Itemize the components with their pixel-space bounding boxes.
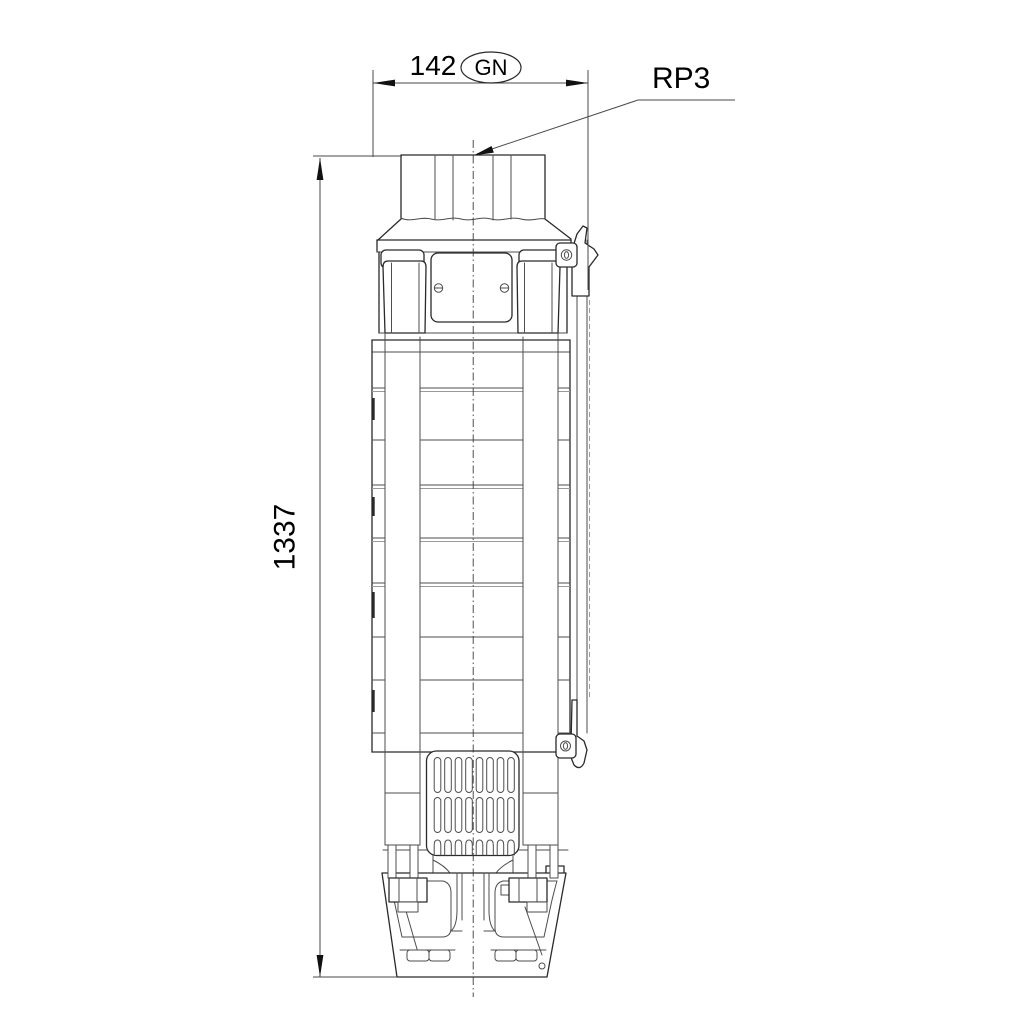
cable-guard-strap-left	[385, 333, 420, 845]
chamber-stack	[372, 340, 571, 752]
drawing-canvas: 142 GN 1337 RP3	[0, 0, 1024, 1024]
connection-callout: RP3	[474, 62, 736, 156]
stud-bolt-left	[388, 845, 427, 912]
dimension-arrow-up-icon	[317, 158, 324, 180]
strap-clamp-left	[381, 250, 426, 333]
discharge-head	[378, 155, 571, 240]
leader-arrow-icon	[474, 146, 494, 156]
dimension-arrow-right-icon	[566, 80, 588, 87]
dimension-arrow-left-icon	[373, 80, 395, 87]
pump-technical-drawing: 142 GN 1337 RP3	[0, 0, 1024, 1024]
motor-base	[382, 845, 568, 977]
cable-guard-strap-right	[523, 333, 558, 845]
cable-clamp-plate	[431, 253, 512, 322]
connection-type-label: RP3	[652, 62, 710, 95]
strap-clamp-right	[517, 250, 562, 333]
stage-lines	[372, 388, 570, 733]
height-dimension: 1337	[269, 156, 403, 977]
pump-outline	[372, 140, 599, 997]
width-dimension-value: 142	[410, 50, 457, 81]
dimension-arrow-down-icon	[317, 955, 324, 977]
height-dimension-value: 1337	[269, 504, 302, 571]
cable-guard-side	[556, 226, 598, 768]
gn-badge-label: GN	[475, 55, 508, 80]
leader-line	[477, 100, 735, 154]
